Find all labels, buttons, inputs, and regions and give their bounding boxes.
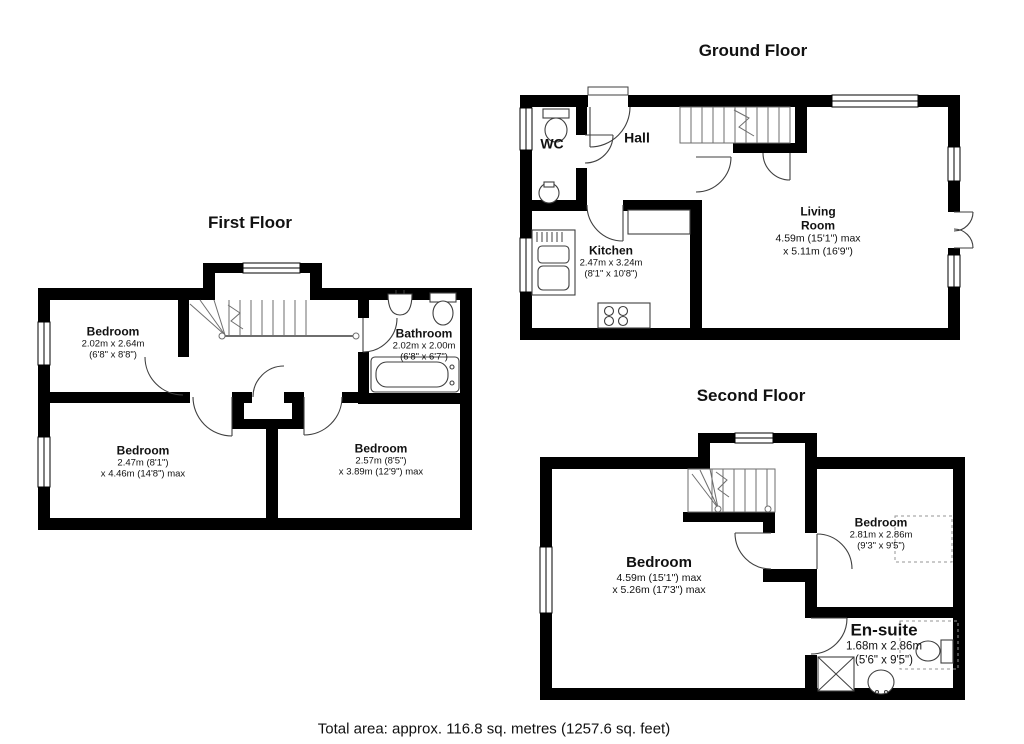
room-dims-ft: (6'8" x 6'7"): [393, 352, 456, 363]
ground-floor-walls: [520, 95, 960, 340]
wc-basin-icon: [539, 182, 559, 203]
room-label-bedroom-top: Bedroom 2.02m x 2.64m (6'8" x 8'8"): [82, 325, 145, 362]
room-dims: 2.81m x 2.86m: [850, 530, 913, 541]
second-floor-doors: [735, 533, 852, 654]
room-dims: 1.68m x 2.86m: [846, 640, 922, 654]
kitchen-sink-counter-icon: [532, 230, 575, 295]
room-label-hall: Hall: [624, 130, 650, 147]
room-dims: 4.59m (15'1") max: [775, 233, 860, 245]
room-dims-ft: (5'6" x 9'5"): [846, 654, 922, 668]
bathroom-toilet-icon: [430, 293, 456, 325]
room-dims: 2.02m x 2.64m: [82, 339, 145, 350]
room-dims: 2.47m x 3.24m: [580, 258, 643, 269]
second-floor-stairs: [688, 469, 775, 512]
room-label-bedroom-small: Bedroom 2.81m x 2.86m (9'3" x 9'5"): [850, 516, 913, 553]
first-floor-plan: [38, 263, 472, 530]
ground-floor-title: Ground Floor: [699, 41, 808, 61]
room-name: Bedroom: [82, 325, 145, 339]
room-name: Living: [775, 204, 860, 218]
ground-floor-plan: [520, 87, 973, 340]
room-name: Bedroom: [339, 442, 423, 456]
first-floor-title: First Floor: [208, 213, 292, 233]
bathroom-basin-icon: [388, 290, 412, 315]
room-name: Kitchen: [580, 244, 643, 258]
room-label-ensuite: En-suite 1.68m x 2.86m (5'6" x 9'5"): [846, 620, 922, 667]
room-dims: 2.02m x 2.00m: [393, 341, 456, 352]
room-name: Bathroom: [393, 327, 456, 341]
room-name: WC: [540, 136, 563, 153]
floor-plan-image: First Floor Ground Floor Second Floor WC…: [0, 0, 1024, 744]
first-floor-stairs: [190, 300, 359, 339]
total-area-text: Total area: approx. 116.8 sq. metres (12…: [318, 721, 670, 738]
room-label-bedroom-main: Bedroom 4.59m (15'1") max x 5.26m (17'3"…: [612, 554, 705, 596]
room-name: En-suite: [846, 620, 922, 640]
room-name: Bedroom: [850, 516, 913, 530]
room-dims-ft: x 5.26m (17'3") max: [612, 584, 705, 596]
room-label-bathroom: Bathroom 2.02m x 2.00m (6'8" x 6'7"): [393, 327, 456, 364]
room-label-bedroom-right: Bedroom 2.57m (8'5") x 3.89m (12'9") max: [339, 442, 423, 479]
kitchen-hob-icon: [598, 303, 650, 328]
kitchen-worktop-icon: [628, 210, 690, 234]
room-name: Hall: [624, 130, 650, 147]
room-dims: 2.47m (8'1"): [101, 458, 185, 469]
room-label-living-room: Living Room 4.59m (15'1") max x 5.11m (1…: [775, 204, 860, 257]
room-dims-ft: (6'8" x 8'8"): [82, 350, 145, 361]
room-dims-ft: (8'1" x 10'8"): [580, 269, 643, 280]
ensuite-basin-icon: [868, 670, 894, 694]
room-dims: 4.59m (15'1") max: [612, 571, 705, 583]
room-dims-ft: (9'3" x 9'5"): [850, 541, 913, 552]
room-label-wc: WC: [540, 136, 563, 153]
second-floor-title: Second Floor: [697, 386, 806, 406]
room-name: Bedroom: [612, 554, 705, 572]
room-dims-ft: x 5.11m (16'9"): [775, 245, 860, 257]
room-label-bedroom-left: Bedroom 2.47m (8'1") x 4.46m (14'8") max: [101, 444, 185, 481]
room-dims: 2.57m (8'5"): [339, 456, 423, 467]
room-dims-ft: x 4.46m (14'8") max: [101, 469, 185, 480]
room-name-2: Room: [775, 219, 860, 233]
room-dims-ft: x 3.89m (12'9") max: [339, 467, 423, 478]
ground-floor-stairs: [680, 107, 790, 143]
room-name: Bedroom: [101, 444, 185, 458]
room-label-kitchen: Kitchen 2.47m x 3.24m (8'1" x 10'8"): [580, 244, 643, 281]
